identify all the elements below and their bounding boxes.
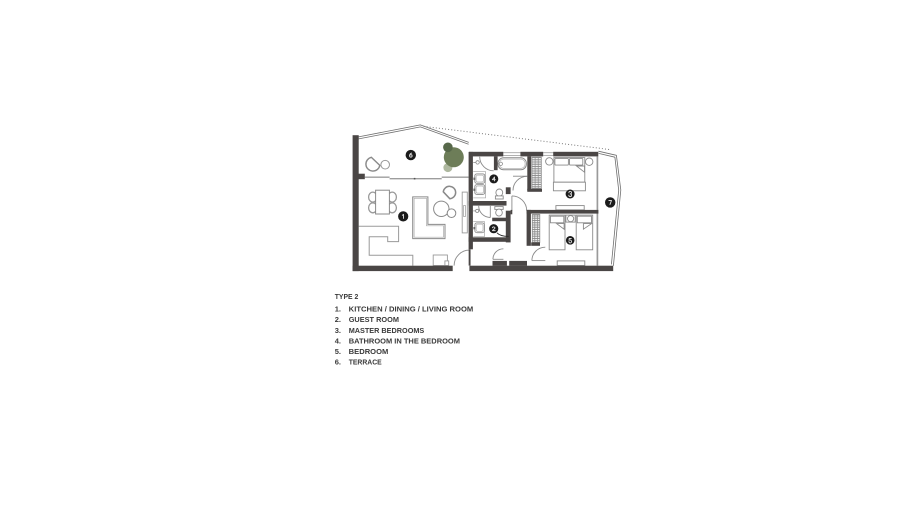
- svg-text:1.: 1.: [335, 304, 341, 313]
- svg-text:GUEST ROOM: GUEST ROOM: [349, 315, 399, 324]
- svg-text:5.: 5.: [335, 347, 341, 356]
- svg-text:BEDROOM: BEDROOM: [349, 347, 389, 356]
- svg-text:TERRACE: TERRACE: [349, 358, 382, 367]
- svg-text:2.: 2.: [335, 315, 341, 324]
- svg-text:6.: 6.: [335, 358, 341, 367]
- svg-text:MASTER BEDROOMS: MASTER BEDROOMS: [349, 326, 425, 335]
- svg-text:BATHROOM IN THE BEDROOM: BATHROOM IN THE BEDROOM: [349, 337, 460, 346]
- svg-text:KITCHEN / DINING / LIVING ROOM: KITCHEN / DINING / LIVING ROOM: [349, 304, 474, 313]
- svg-text:4.: 4.: [335, 337, 341, 346]
- svg-text:3.: 3.: [335, 326, 341, 335]
- svg-text:TYPE 2: TYPE 2: [335, 292, 359, 301]
